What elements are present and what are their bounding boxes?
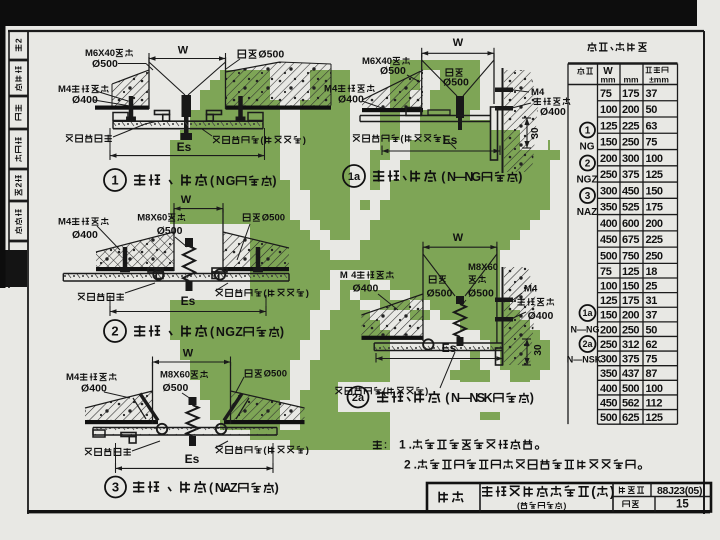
svg-text:): ) — [443, 134, 446, 145]
svg-text:mm: mm — [600, 75, 616, 85]
svg-text:300: 300 — [622, 153, 639, 165]
svg-text:100: 100 — [646, 153, 663, 165]
svg-text:250: 250 — [646, 250, 663, 262]
svg-text:63: 63 — [646, 120, 658, 132]
svg-text:625: 625 — [622, 412, 639, 424]
svg-text:62: 62 — [646, 339, 658, 351]
svg-text:W: W — [453, 37, 464, 49]
svg-text:M4: M4 — [66, 372, 80, 383]
svg-text:30: 30 — [533, 344, 544, 356]
svg-text:125: 125 — [646, 169, 663, 181]
svg-text:): ) — [306, 288, 309, 299]
svg-text:175: 175 — [622, 88, 639, 100]
svg-text:750: 750 — [622, 250, 639, 262]
svg-text:500: 500 — [600, 250, 617, 262]
svg-text:25: 25 — [646, 280, 658, 292]
svg-text:250: 250 — [600, 169, 617, 181]
svg-text:W: W — [178, 45, 189, 57]
svg-text:200: 200 — [646, 218, 663, 230]
svg-text:1: 1 — [585, 126, 591, 137]
svg-text:1.: 1. — [399, 438, 412, 452]
svg-text:250: 250 — [622, 324, 639, 336]
svg-text:88J23(05): 88J23(05) — [657, 485, 702, 497]
svg-text:100: 100 — [600, 280, 617, 292]
svg-text:M4: M4 — [58, 84, 72, 95]
svg-text:): ) — [610, 484, 615, 499]
svg-text:125: 125 — [622, 266, 639, 278]
svg-text:300: 300 — [600, 185, 617, 197]
svg-text:175: 175 — [622, 295, 639, 307]
svg-text:300: 300 — [600, 354, 617, 366]
svg-text:400: 400 — [600, 383, 617, 395]
svg-text:): ) — [272, 174, 276, 188]
svg-text:1: 1 — [111, 173, 118, 188]
svg-text:450: 450 — [600, 234, 617, 246]
svg-text:M8X60: M8X60 — [137, 213, 167, 224]
svg-text:(: ( — [591, 484, 596, 499]
svg-text:M4: M4 — [324, 84, 338, 95]
svg-text:Es: Es — [181, 294, 196, 308]
svg-text:Ø400: Ø400 — [528, 310, 554, 322]
svg-text:NGZ: NGZ — [216, 325, 243, 339]
svg-text:Ø500: Ø500 — [157, 225, 183, 237]
svg-text:250: 250 — [600, 339, 617, 351]
svg-text:562: 562 — [622, 397, 639, 409]
svg-text:): ) — [518, 170, 522, 184]
svg-text:Ø400: Ø400 — [72, 229, 98, 241]
svg-text:75: 75 — [600, 88, 612, 100]
svg-text:350: 350 — [600, 202, 617, 214]
svg-text:): ) — [303, 135, 306, 146]
svg-text:2.: 2. — [404, 458, 417, 472]
svg-text:NG: NG — [216, 174, 236, 188]
svg-text:NG: NG — [580, 142, 595, 153]
svg-text:500: 500 — [622, 383, 639, 395]
svg-text:M8X60: M8X60 — [468, 262, 498, 273]
svg-text:NGZ: NGZ — [576, 175, 597, 186]
svg-text:N—NG: N—NG — [571, 325, 600, 335]
svg-text:437: 437 — [622, 368, 639, 380]
svg-text:312: 312 — [622, 339, 639, 351]
svg-text:18: 18 — [646, 266, 658, 278]
svg-text:3: 3 — [585, 191, 591, 202]
svg-text:Ø500: Ø500 — [262, 213, 285, 224]
svg-text:37: 37 — [646, 310, 658, 322]
svg-text:W: W — [183, 348, 194, 360]
svg-text:±mm: ±mm — [649, 75, 669, 85]
svg-text:50: 50 — [646, 104, 658, 116]
svg-text:): ) — [425, 386, 428, 397]
svg-text:125: 125 — [600, 295, 617, 307]
svg-text:150: 150 — [600, 137, 617, 149]
svg-text:Ø400: Ø400 — [81, 383, 107, 395]
svg-text:1a: 1a — [582, 308, 593, 318]
svg-text:Ø500: Ø500 — [427, 288, 453, 300]
svg-text:N—NSK: N—NSK — [567, 355, 602, 365]
svg-text:675: 675 — [622, 234, 639, 246]
svg-text:350: 350 — [600, 368, 617, 380]
svg-text:75: 75 — [600, 266, 612, 278]
svg-text:500: 500 — [600, 412, 617, 424]
svg-text:400: 400 — [600, 218, 617, 230]
svg-text:225: 225 — [622, 120, 639, 132]
svg-text:Ø400: Ø400 — [540, 106, 566, 118]
svg-text:2: 2 — [13, 38, 23, 43]
svg-text:M8X60: M8X60 — [160, 370, 190, 381]
svg-text:Ø500: Ø500 — [92, 58, 118, 70]
svg-text:100: 100 — [600, 104, 617, 116]
svg-text:M4: M4 — [531, 87, 545, 98]
svg-text:Es: Es — [185, 452, 200, 466]
svg-text:37: 37 — [646, 88, 658, 100]
svg-text:): ) — [530, 391, 534, 405]
svg-text:75: 75 — [646, 354, 658, 366]
svg-text:Ø500: Ø500 — [258, 49, 284, 61]
svg-text:2a: 2a — [582, 339, 593, 349]
svg-text:525: 525 — [622, 202, 639, 214]
svg-text:N—NSK: N—NSK — [451, 391, 493, 405]
svg-text:): ) — [280, 325, 284, 339]
svg-text:50: 50 — [646, 324, 658, 336]
svg-text:Ø400: Ø400 — [338, 94, 364, 106]
svg-text:2: 2 — [13, 182, 23, 187]
svg-text:NAZ: NAZ — [577, 207, 598, 218]
svg-text:Ø500: Ø500 — [468, 288, 494, 300]
svg-text:75: 75 — [646, 137, 658, 149]
svg-text:375: 375 — [622, 354, 639, 366]
svg-text:600: 600 — [622, 218, 639, 230]
svg-text:31: 31 — [646, 295, 658, 307]
svg-text:15: 15 — [676, 499, 689, 511]
svg-text:): ) — [275, 481, 279, 495]
svg-text:100: 100 — [646, 383, 663, 395]
svg-text:3: 3 — [112, 480, 119, 495]
svg-text:Es: Es — [177, 140, 192, 154]
svg-text:150: 150 — [622, 280, 639, 292]
svg-text:225: 225 — [646, 234, 663, 246]
svg-text:M4: M4 — [524, 284, 538, 295]
svg-text:375: 375 — [622, 169, 639, 181]
svg-text:450: 450 — [622, 185, 639, 197]
svg-text:200: 200 — [622, 104, 639, 116]
svg-text:mm: mm — [623, 75, 639, 85]
svg-text:): ) — [564, 500, 567, 510]
svg-text:200: 200 — [622, 310, 639, 322]
svg-text:125: 125 — [600, 120, 617, 132]
svg-text:200: 200 — [600, 153, 617, 165]
svg-text:2: 2 — [585, 159, 591, 170]
svg-text:1a: 1a — [348, 171, 361, 183]
svg-text:112: 112 — [646, 397, 663, 409]
svg-text:250: 250 — [622, 137, 639, 149]
svg-text:): ) — [306, 445, 309, 456]
svg-text:Ø400: Ø400 — [353, 283, 379, 295]
svg-text:150: 150 — [646, 185, 663, 197]
svg-text:M4: M4 — [58, 217, 72, 228]
svg-text:175: 175 — [646, 202, 663, 214]
svg-text:NAZ: NAZ — [215, 481, 238, 495]
svg-text:Ø500: Ø500 — [380, 65, 406, 77]
svg-text:Ø500: Ø500 — [264, 369, 287, 380]
svg-text:2a: 2a — [352, 392, 365, 404]
svg-text:W: W — [453, 232, 464, 244]
svg-text:125: 125 — [646, 412, 663, 424]
svg-text:200: 200 — [600, 324, 617, 336]
svg-text:2: 2 — [111, 324, 118, 339]
svg-text:150: 150 — [600, 310, 617, 322]
svg-text:(: ( — [517, 500, 520, 510]
svg-text:450: 450 — [600, 397, 617, 409]
svg-text:30: 30 — [530, 127, 541, 139]
svg-text:Ø500: Ø500 — [163, 382, 189, 394]
svg-text:Ø500: Ø500 — [443, 77, 469, 89]
svg-text:W: W — [181, 194, 192, 206]
svg-text:87: 87 — [646, 368, 658, 380]
svg-text:N—NG: N—NG — [447, 170, 481, 184]
